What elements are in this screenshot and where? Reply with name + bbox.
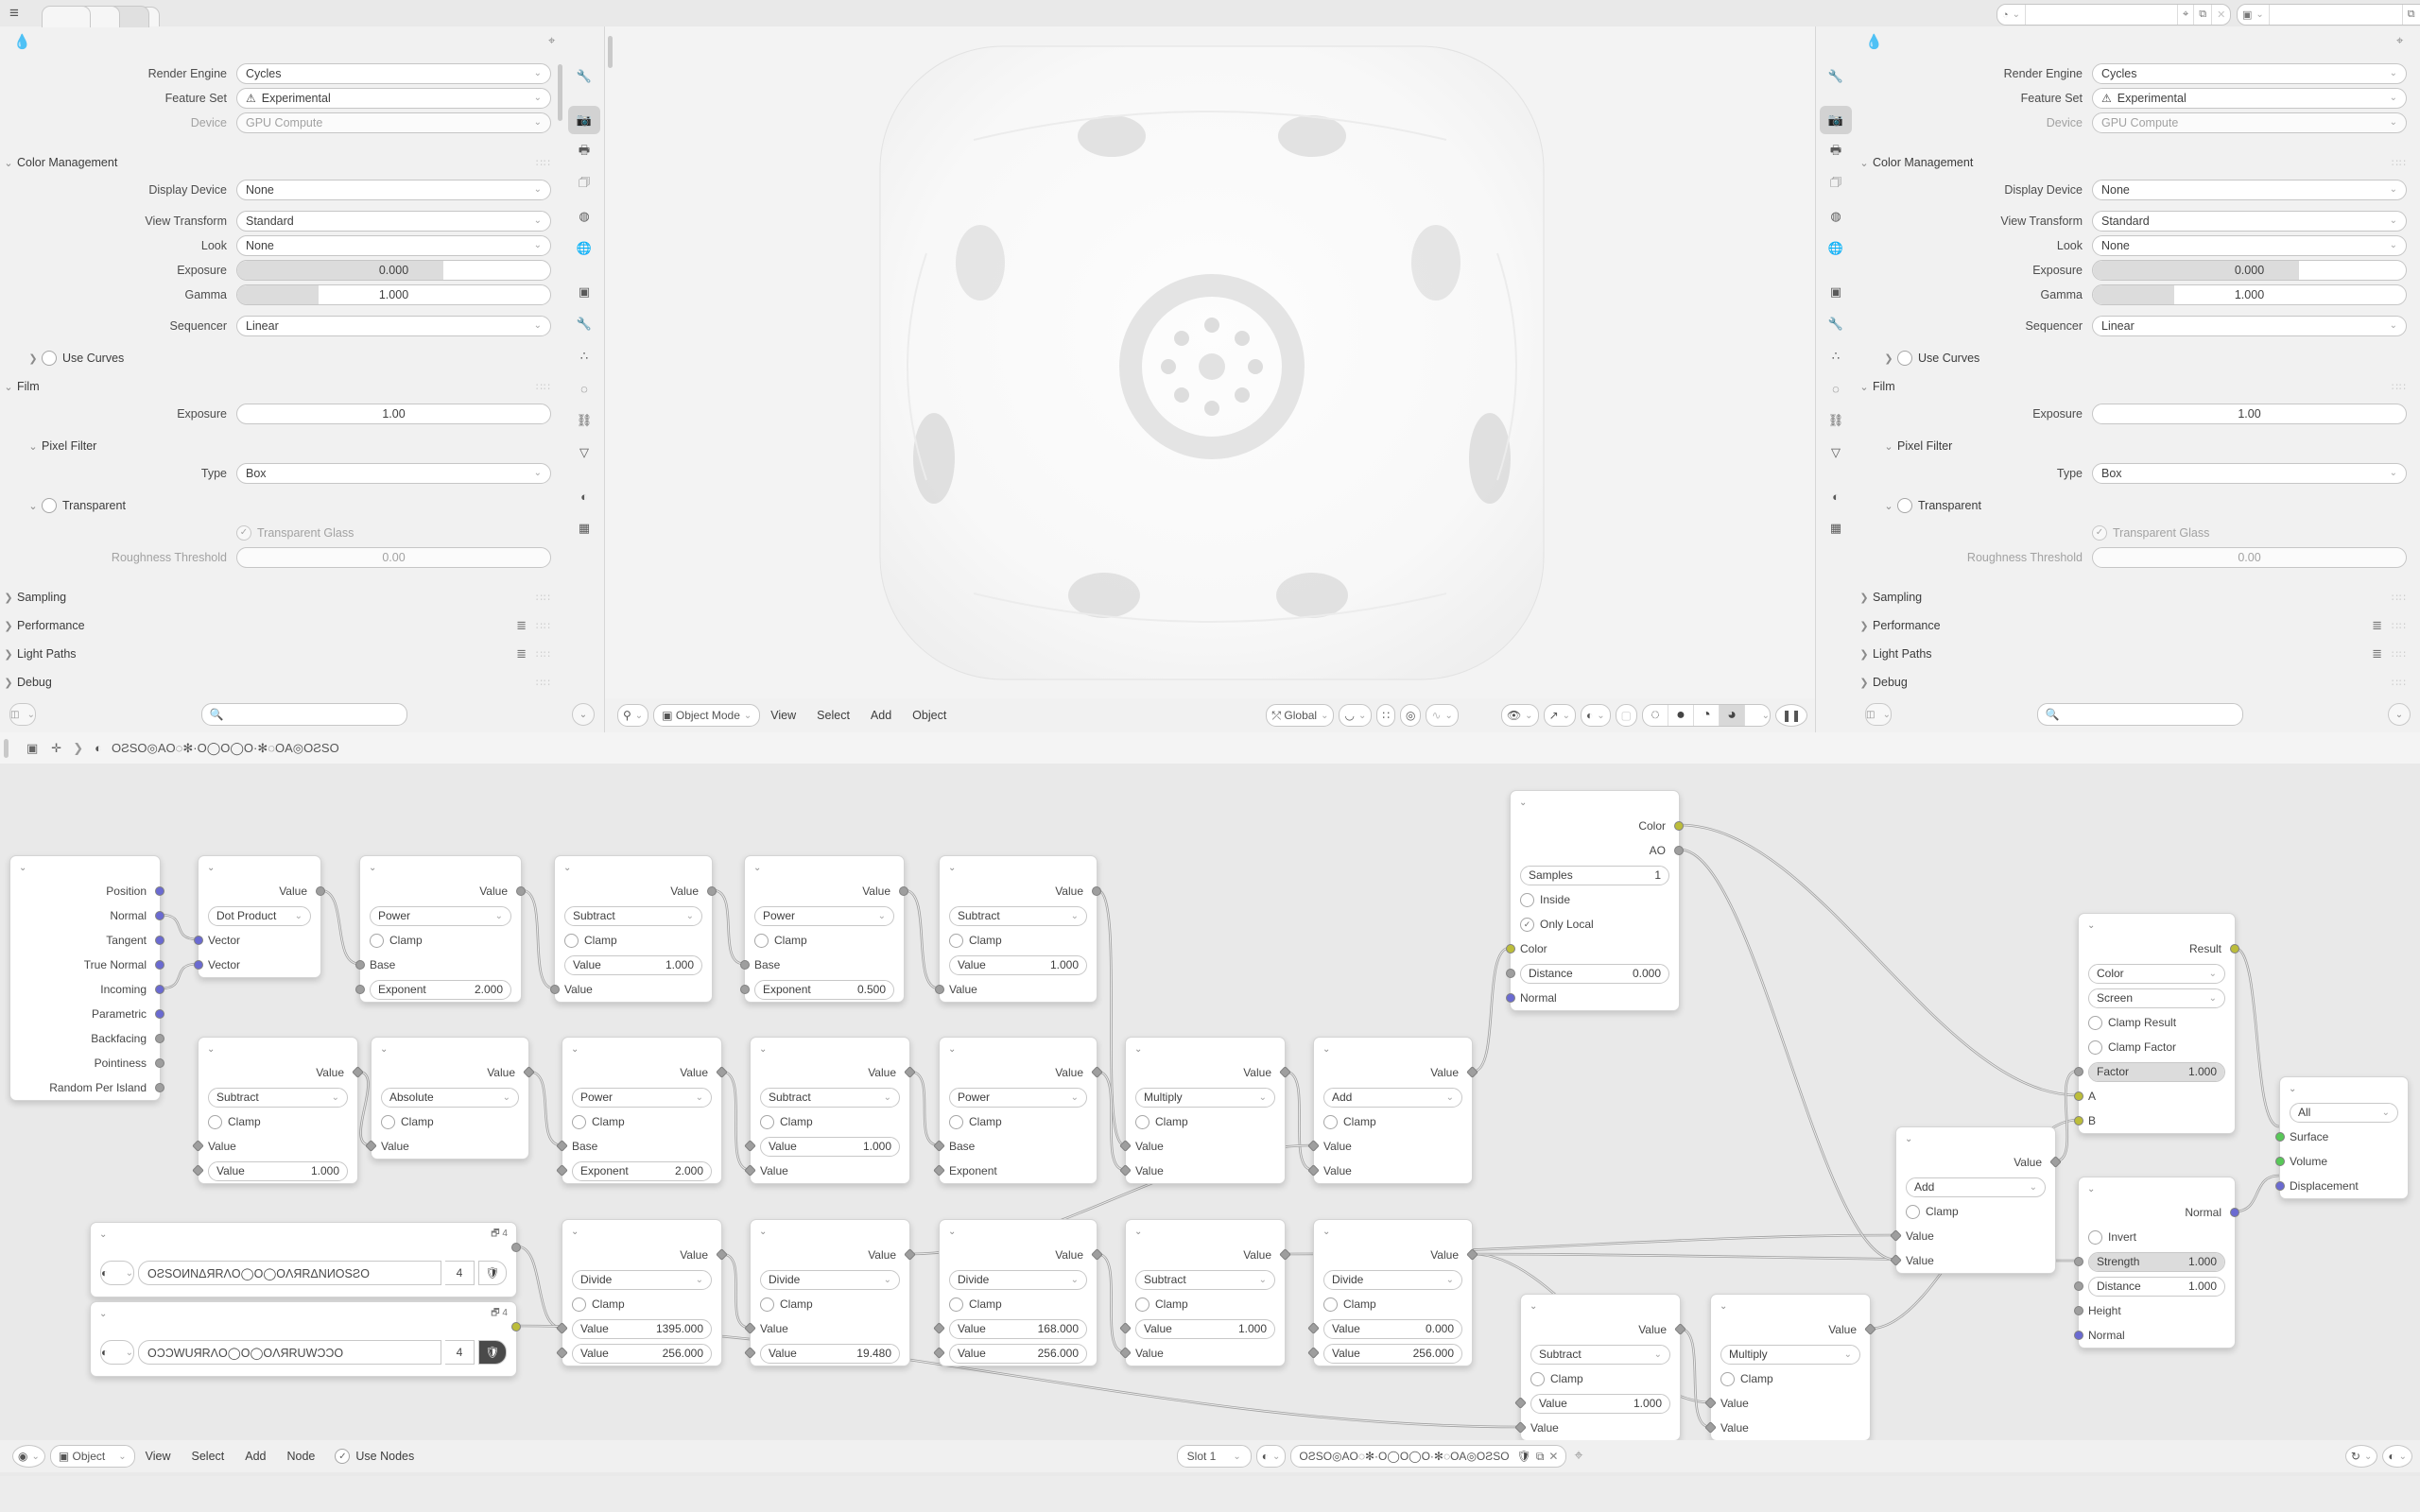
properties-tab-scene-icon[interactable]: ◍ xyxy=(1820,202,1852,231)
checkbox[interactable] xyxy=(1135,1115,1149,1129)
properties-tab-texture-icon[interactable]: ▦ xyxy=(1820,514,1852,542)
node-header[interactable]: ⌄ xyxy=(10,856,160,879)
snap-magnet-icon[interactable]: ◡⌄ xyxy=(1339,704,1372,727)
checkbox[interactable] xyxy=(760,1297,774,1312)
node-header[interactable]: ⌄ xyxy=(940,1038,1097,1060)
node-math-divide-r3a[interactable]: ⌄ValueDivide⌄ClampValue1395.000Value256.… xyxy=(562,1219,722,1366)
node-value-field[interactable]: Distance0.000 xyxy=(1520,964,1669,984)
collapse-chevron-icon[interactable]: ⌄ xyxy=(753,863,761,873)
collapse-chevron-icon[interactable]: ⌄ xyxy=(99,1309,107,1319)
checkbox[interactable] xyxy=(760,1115,774,1129)
node-header[interactable]: ⌄ xyxy=(2079,1177,2235,1200)
checkbox[interactable] xyxy=(208,1115,222,1129)
prop-field-display-device[interactable]: None⌄ xyxy=(236,180,551,200)
node-math-subtract-bottom[interactable]: ⌄ValueSubtract⌄ClampValue1.000Value xyxy=(1520,1294,1681,1441)
section-sampling[interactable]: ❯Sampling∷∷ xyxy=(1856,583,2420,611)
drag-handle-icon[interactable]: ∷∷ xyxy=(2392,620,2407,632)
node-select[interactable]: Subtract⌄ xyxy=(949,906,1087,926)
input-socket[interactable] xyxy=(2275,1132,2285,1142)
checkbox[interactable]: ✓ xyxy=(1520,918,1534,932)
section-sampling[interactable]: ❯Sampling∷∷ xyxy=(0,583,564,611)
node-value-field[interactable]: Value0.000 xyxy=(1323,1319,1462,1339)
snap-target-icon[interactable]: ∷ xyxy=(1376,704,1395,727)
material-id-name[interactable] xyxy=(2026,5,2178,25)
drag-handle-icon[interactable]: ∷∷ xyxy=(536,677,551,689)
node-header[interactable]: ⌄ xyxy=(2280,1077,2408,1100)
drag-handle-icon[interactable]: ∷∷ xyxy=(536,381,551,393)
node-value-field[interactable]: Value256.000 xyxy=(1323,1344,1462,1364)
node-math-divide-r3b[interactable]: ⌄ValueDivide⌄ClampValueValue19.480 xyxy=(750,1219,910,1366)
node-select[interactable]: Dot Product⌄ xyxy=(208,906,311,926)
prop-field-gamma[interactable]: 1.000 xyxy=(236,284,551,305)
collapse-chevron-icon[interactable]: ⌄ xyxy=(207,863,215,873)
close-icon[interactable]: ✕ xyxy=(2212,5,2230,25)
properties-tab-object-icon[interactable]: ▣ xyxy=(568,278,600,306)
input-socket[interactable] xyxy=(2074,1306,2083,1315)
node-math-absolute[interactable]: ⌄ValueAbsolute⌄ClampValue xyxy=(371,1037,529,1160)
transform-orientation-select[interactable]: ⤱ Global⌄ xyxy=(1266,704,1334,727)
input-socket[interactable] xyxy=(2074,1116,2083,1125)
node-select[interactable]: Subtract⌄ xyxy=(564,906,702,926)
properties-tab-object-data-icon[interactable]: ▽ xyxy=(1820,438,1852,467)
node-header[interactable]: ⌄ xyxy=(1126,1038,1285,1060)
section-debug[interactable]: ❯Debug∷∷ xyxy=(1856,668,2420,695)
input-socket[interactable] xyxy=(2074,1257,2083,1266)
output-socket[interactable] xyxy=(1674,846,1684,855)
node-header[interactable]: ⌄ xyxy=(940,1220,1097,1243)
collapse-chevron-icon[interactable]: ⌄ xyxy=(380,1044,388,1055)
node-ambient-occlusion[interactable]: ⌄ColorAOSamples1Inside✓Only LocalColorDi… xyxy=(1510,790,1680,1011)
collapse-chevron-icon[interactable]: ⌄ xyxy=(759,1044,767,1055)
checkbox[interactable] xyxy=(1906,1205,1920,1219)
collapse-chevron-icon[interactable]: ⌄ xyxy=(948,1044,956,1055)
properties-tab-constraints-icon[interactable]: ⛓ xyxy=(568,406,600,435)
drag-handle-icon[interactable]: ∷∷ xyxy=(536,157,551,169)
output-socket[interactable] xyxy=(155,1034,164,1043)
checkbox[interactable] xyxy=(370,934,384,948)
drag-handle-icon[interactable]: ∷∷ xyxy=(536,648,551,661)
node-math-power-1[interactable]: ⌄ValuePower⌄ClampBaseExponent2.000 xyxy=(359,855,522,1003)
node-math-power-r2[interactable]: ⌄ValuePower⌄ClampBaseExponent2.000 xyxy=(562,1037,722,1184)
falloff-curve-icon[interactable]: ∿⌄ xyxy=(1426,704,1458,727)
input-socket[interactable] xyxy=(740,960,750,970)
slot-select[interactable]: Slot 1⌄ xyxy=(1177,1445,1252,1468)
collapse-chevron-icon[interactable]: ⌄ xyxy=(1720,1301,1727,1312)
output-socket[interactable] xyxy=(511,1322,521,1332)
section-transparent[interactable]: ⌄Transparent xyxy=(1856,491,2420,520)
node-value-field[interactable]: Factor1.000 xyxy=(2088,1062,2225,1082)
node-header[interactable]: ⌄ xyxy=(1511,791,1679,814)
node-value-field[interactable]: Value256.000 xyxy=(572,1344,712,1364)
viewport-menu-object[interactable]: Object xyxy=(912,709,946,722)
output-socket[interactable] xyxy=(155,1083,164,1092)
prop-field-device[interactable]: GPU Compute⌄ xyxy=(2092,112,2407,133)
shading-solid-icon[interactable]: ● xyxy=(1668,705,1694,726)
checkbox[interactable] xyxy=(1897,351,1912,366)
node-select[interactable]: Subtract⌄ xyxy=(1530,1345,1670,1365)
prop-field-roughness-threshold[interactable]: 0.00 xyxy=(2092,547,2407,568)
node-value-field[interactable]: Value1.000 xyxy=(760,1137,900,1157)
node-math-multiply-r2[interactable]: ⌄ValueMultiply⌄ClampValueValue xyxy=(1125,1037,1286,1184)
collapse-chevron-icon[interactable]: ⌄ xyxy=(2087,920,2095,931)
shading-wireframe-icon[interactable]: ◌ xyxy=(1643,705,1668,726)
node-math-subtract-r2a[interactable]: ⌄ValueSubtract⌄ClampValueValue1.000 xyxy=(198,1037,358,1184)
node-header[interactable]: ⌄ xyxy=(1711,1295,1870,1317)
image-user-count[interactable]: 4 xyxy=(445,1261,475,1285)
checkbox[interactable] xyxy=(1520,893,1534,907)
checkbox[interactable] xyxy=(42,498,57,513)
node-header[interactable]: ⌄ xyxy=(199,856,320,879)
editor-type-button[interactable]: ◉⌄ xyxy=(12,1445,45,1468)
node-select[interactable]: Multiply⌄ xyxy=(1135,1088,1275,1108)
properties-tab-modifiers-icon[interactable]: 🔧 xyxy=(1820,310,1852,338)
section-performance[interactable]: ❯Performance≣∷∷ xyxy=(0,611,564,640)
output-socket[interactable] xyxy=(707,886,717,896)
checkbox[interactable] xyxy=(2088,1040,2102,1055)
viewport-menu-select[interactable]: Select xyxy=(817,709,850,722)
output-socket[interactable] xyxy=(155,1009,164,1019)
prop-field-exposure[interactable]: 1.00 xyxy=(236,404,551,424)
filter-toggle-button[interactable]: ◫⌄ xyxy=(1865,703,1892,726)
input-socket[interactable] xyxy=(2074,1067,2083,1076)
checkbox[interactable]: ✓ xyxy=(236,525,251,541)
material-name-field[interactable]: OƧSO◎AO◌✻·O◯O◯O·✻◌OA◎OƧSO 🛡 ⧉ ✕ xyxy=(1290,1445,1566,1468)
drag-handle-icon[interactable]: ∷∷ xyxy=(2392,381,2407,393)
prop-field-exposure[interactable]: 0.000 xyxy=(2092,260,2407,281)
proportional-edit-icon[interactable]: ◎ xyxy=(1400,704,1421,727)
drag-handle-icon[interactable]: ∷∷ xyxy=(536,620,551,632)
collapse-chevron-icon[interactable]: ⌄ xyxy=(1530,1301,1537,1312)
collapse-chevron-icon[interactable]: ⌄ xyxy=(759,1227,767,1237)
properties-tab-constraints-icon[interactable]: ⛓ xyxy=(1820,406,1852,435)
checkbox[interactable] xyxy=(564,934,579,948)
visibility-eye-icon[interactable]: 👁⌄ xyxy=(1501,704,1539,727)
output-socket[interactable] xyxy=(1674,821,1684,831)
pin-icon[interactable]: ⌖ xyxy=(2396,33,2403,48)
node-select[interactable]: Add⌄ xyxy=(1906,1177,2046,1197)
prop-field-feature-set[interactable]: ⚠Experimental⌄ xyxy=(2092,88,2407,109)
checkbox[interactable] xyxy=(949,934,963,948)
properties-tab-render-icon[interactable]: 📷 xyxy=(568,106,600,134)
collapse-chevron-icon[interactable]: ⌄ xyxy=(1905,1134,1912,1144)
checkbox[interactable]: ✓ xyxy=(2092,525,2107,541)
checkbox[interactable] xyxy=(1897,498,1912,513)
collapse-chevron-icon[interactable]: ⌄ xyxy=(19,863,26,873)
node-header[interactable]: ⌄ xyxy=(745,856,904,879)
shading-material-icon[interactable]: ◔ xyxy=(1694,705,1720,726)
copy-icon[interactable]: ⧉ xyxy=(2403,5,2420,25)
use-nodes-checkbox[interactable]: ✓Use Nodes xyxy=(335,1449,414,1464)
prop-field-roughness-threshold[interactable]: 0.00 xyxy=(236,547,551,568)
viewport-3d[interactable]: ⚲⌄ ▣ Object Mode⌄ ViewSelectAddObject ⤱ … xyxy=(605,26,1815,732)
node-header[interactable]: ⌄ xyxy=(1314,1038,1472,1060)
preset-list-icon[interactable]: ≣ xyxy=(2372,618,2382,633)
section-pixel-filter[interactable]: ⌄Pixel Filter xyxy=(1856,432,2420,460)
scrollbar[interactable] xyxy=(608,36,613,68)
node-header[interactable]: ⌄ xyxy=(1521,1295,1680,1317)
node-value-field[interactable]: Value168.000 xyxy=(949,1319,1087,1339)
section-performance[interactable]: ❯Performance≣∷∷ xyxy=(1856,611,2420,640)
collapse-chevron-icon[interactable]: ⌄ xyxy=(1134,1044,1142,1055)
node-value-field[interactable]: Exponent0.500 xyxy=(754,980,894,1000)
drag-handle-icon[interactable]: ∷∷ xyxy=(2392,648,2407,661)
node-value-field[interactable]: Value1.000 xyxy=(564,955,702,975)
prop-field-sequencer[interactable]: Linear⌄ xyxy=(236,316,551,336)
collapse-chevron-icon[interactable]: ⌄ xyxy=(1322,1227,1330,1237)
properties-tab-scene-icon[interactable]: ◍ xyxy=(568,202,600,231)
mode-select[interactable]: ▣ Object Mode⌄ xyxy=(653,704,760,727)
node-header[interactable]: ⌄ xyxy=(555,856,712,879)
gizmo-arrow-icon[interactable]: ↗⌄ xyxy=(1544,704,1576,727)
node-select[interactable]: Absolute⌄ xyxy=(381,1088,519,1108)
collapse-chevron-icon[interactable]: ⌄ xyxy=(571,1227,579,1237)
image-datablock-icon[interactable]: ◐⌄ xyxy=(100,1340,134,1365)
properties-tab-view-layer-icon[interactable]: 🗇 xyxy=(568,170,600,198)
collapse-chevron-icon[interactable]: ⌄ xyxy=(563,863,571,873)
node-image-texture-a[interactable]: ⌄🗗 4◐⌄OƧSOИNΔЯRΛO◯O◯OΛЯRΔNИOSƧO4🛡 xyxy=(90,1222,517,1297)
checkbox[interactable] xyxy=(1720,1372,1735,1386)
properties-tab-view-layer-icon[interactable]: 🗇 xyxy=(1820,170,1852,198)
checkbox[interactable] xyxy=(949,1297,963,1312)
output-socket[interactable] xyxy=(316,886,325,896)
input-socket[interactable] xyxy=(2074,1281,2083,1291)
section-debug[interactable]: ❯Debug∷∷ xyxy=(0,668,564,695)
properties-tab-output-icon[interactable]: 🖶 xyxy=(1820,138,1852,166)
copy-icon[interactable]: ⧉ xyxy=(1536,1450,1545,1464)
output-socket[interactable] xyxy=(155,911,164,920)
node-select[interactable]: Multiply⌄ xyxy=(1720,1345,1860,1365)
input-socket[interactable] xyxy=(740,985,750,994)
input-socket[interactable] xyxy=(2275,1181,2285,1191)
prop-field-sequencer[interactable]: Linear⌄ xyxy=(2092,316,2407,336)
input-socket[interactable] xyxy=(550,985,560,994)
checkbox[interactable] xyxy=(2088,1230,2102,1245)
collapse-button[interactable]: ⌄ xyxy=(572,703,595,726)
node-value-field[interactable]: Samples1 xyxy=(1520,866,1669,885)
section-color-management[interactable]: ⌄Color Management∷∷ xyxy=(0,148,564,177)
prop-field-type[interactable]: Box⌄ xyxy=(2092,463,2407,484)
prop-field-exposure[interactable]: 0.000 xyxy=(236,260,551,281)
prop-field-view-transform[interactable]: Standard⌄ xyxy=(236,211,551,232)
node-select[interactable]: Divide⌄ xyxy=(572,1270,712,1290)
node-select[interactable]: Subtract⌄ xyxy=(208,1088,348,1108)
section-use-curves[interactable]: ❯Use Curves xyxy=(0,344,564,372)
node-header[interactable]: ⌄ xyxy=(1126,1220,1285,1243)
shader-editor[interactable]: ▣ ✛ ❯ ◐ OƧSO◎AO◌✻·O◯O◯O·✻◌OA◎OƧSO ⌄Posit… xyxy=(0,732,2420,1476)
collapse-chevron-icon[interactable]: ⌄ xyxy=(1134,1227,1142,1237)
section-light-paths[interactable]: ❯Light Paths≣∷∷ xyxy=(0,640,564,668)
node-header[interactable]: ⌄ xyxy=(199,1038,357,1060)
properties-tab-tool-icon[interactable]: 🔧 xyxy=(568,62,600,91)
overlays-icon[interactable]: ◐⌄ xyxy=(1581,704,1611,727)
prop-field-device[interactable]: GPU Compute⌄ xyxy=(236,112,551,133)
node-select[interactable]: Subtract⌄ xyxy=(760,1088,900,1108)
section-film[interactable]: ⌄Film∷∷ xyxy=(1856,372,2420,401)
node-math-add-r2[interactable]: ⌄ValueAdd⌄ClampValueValue xyxy=(1313,1037,1473,1184)
output-socket[interactable] xyxy=(155,886,164,896)
node-value-field[interactable]: Value19.480 xyxy=(760,1344,900,1364)
properties-tab-texture-icon[interactable]: ▦ xyxy=(568,514,600,542)
shader-menu-add[interactable]: Add xyxy=(245,1450,266,1463)
collapse-chevron-icon[interactable]: ⌄ xyxy=(99,1229,107,1240)
properties-tab-material-icon[interactable]: ◐ xyxy=(568,482,600,510)
properties-tab-tool-icon[interactable]: 🔧 xyxy=(1820,62,1852,91)
properties-tab-world-icon[interactable]: 🌐 xyxy=(568,234,600,263)
output-socket[interactable] xyxy=(155,936,164,945)
output-socket[interactable] xyxy=(516,886,526,896)
input-socket[interactable] xyxy=(2074,1331,2083,1340)
node-math-subtract-r3[interactable]: ⌄ValueSubtract⌄ClampValue1.000Value xyxy=(1125,1219,1286,1366)
node-image-texture-b[interactable]: ⌄🗗 4◐⌄OƆƆWUЯRΛO◯O◯OΛЯRUWƆƆO4🛡 xyxy=(90,1301,517,1377)
checkbox[interactable] xyxy=(572,1297,586,1312)
node-select[interactable]: Divide⌄ xyxy=(1323,1270,1462,1290)
node-header[interactable]: ⌄ xyxy=(1314,1220,1472,1243)
checkbox[interactable] xyxy=(1530,1372,1545,1386)
viewport-menu-view[interactable]: View xyxy=(770,709,796,722)
shader-menu-view[interactable]: View xyxy=(146,1450,171,1463)
node-bump[interactable]: ⌄NormalInvertStrength1.000Distance1.000H… xyxy=(2078,1177,2236,1349)
properties-tab-render-icon[interactable]: 📷 xyxy=(1820,106,1852,134)
section-color-management[interactable]: ⌄Color Management∷∷ xyxy=(1856,148,2420,177)
collapse-chevron-icon[interactable]: ⌄ xyxy=(369,863,376,873)
fake-user-shield-icon[interactable]: 🛡 xyxy=(478,1340,507,1365)
node-select[interactable]: Divide⌄ xyxy=(760,1270,900,1290)
scrollbar[interactable] xyxy=(558,64,562,121)
node-value-field[interactable]: Value1395.000 xyxy=(572,1319,712,1339)
copy-icon[interactable]: ⧉ xyxy=(2194,5,2212,25)
properties-tab-world-icon[interactable]: 🌐 xyxy=(1820,234,1852,263)
node-header[interactable]: ⌄ xyxy=(360,856,521,879)
checkbox[interactable] xyxy=(2088,1016,2102,1030)
node-select[interactable]: Power⌄ xyxy=(370,906,511,926)
checkbox[interactable] xyxy=(1135,1297,1149,1312)
shading-rendered-icon[interactable]: ◕ xyxy=(1720,705,1745,726)
image-id-selector[interactable]: ▣⌄ ⧉ ✕ xyxy=(2237,4,2420,26)
overlay-icon[interactable]: ◐⌄ xyxy=(2382,1445,2412,1468)
collapse-chevron-icon[interactable]: ⌄ xyxy=(1322,1044,1330,1055)
collapse-chevron-icon[interactable]: ⌄ xyxy=(948,863,956,873)
image-name-field[interactable]: OƆƆWUЯRΛO◯O◯OΛЯRUWƆƆO xyxy=(138,1340,441,1365)
collapse-chevron-icon[interactable]: ⌄ xyxy=(948,1227,956,1237)
prop-field-feature-set[interactable]: ⚠Experimental⌄ xyxy=(236,88,551,109)
input-socket[interactable] xyxy=(935,985,944,994)
node-mix-color[interactable]: ⌄ResultColor⌄Screen⌄Clamp ResultClamp Fa… xyxy=(2078,913,2236,1134)
pin-icon[interactable]: ⌖ xyxy=(1574,1448,1582,1465)
input-socket[interactable] xyxy=(2074,1091,2083,1101)
node-value-field[interactable]: Distance1.000 xyxy=(2088,1277,2225,1297)
node-value-field[interactable]: Strength1.000 xyxy=(2088,1252,2225,1272)
node-select[interactable]: Color⌄ xyxy=(2088,964,2225,984)
image-icon[interactable]: ▣⌄ xyxy=(2238,5,2270,25)
node-math-subtract-2[interactable]: ⌄ValueSubtract⌄ClampValue1.000Value xyxy=(939,855,1098,1003)
input-socket[interactable] xyxy=(355,985,365,994)
node-value-field[interactable]: Value1.000 xyxy=(208,1161,348,1181)
collapse-chevron-icon[interactable]: ⌄ xyxy=(2289,1084,2296,1094)
node-header[interactable]: ⌄🗗 4 xyxy=(91,1302,516,1325)
shader-mode-select[interactable]: ▣ Object⌄ xyxy=(50,1445,135,1468)
checkbox[interactable] xyxy=(754,934,769,948)
image-name-field[interactable]: OƧSOИNΔЯRΛO◯O◯OΛЯRΔNИOSƧO xyxy=(138,1261,441,1285)
collapse-chevron-icon[interactable]: ⌄ xyxy=(207,1044,215,1055)
output-socket[interactable] xyxy=(2230,944,2239,954)
output-socket[interactable] xyxy=(155,985,164,994)
node-value-field[interactable]: Value256.000 xyxy=(949,1344,1087,1364)
drag-handle-icon[interactable]: ∷∷ xyxy=(536,592,551,604)
section-use-curves[interactable]: ❯Use Curves xyxy=(1856,344,2420,372)
image-datablock-icon[interactable]: ◐⌄ xyxy=(100,1261,134,1285)
prop-field-display-device[interactable]: None⌄ xyxy=(2092,180,2407,200)
properties-search-input[interactable]: 🔍 xyxy=(201,703,407,726)
node-header[interactable]: ⌄ xyxy=(1896,1127,2055,1150)
output-socket[interactable] xyxy=(155,960,164,970)
pin-icon[interactable]: ⌖ xyxy=(2178,5,2194,25)
prop-field-exposure[interactable]: 1.00 xyxy=(2092,404,2407,424)
shading-dropdown-icon[interactable]: ⌄ xyxy=(1745,705,1770,726)
section-light-paths[interactable]: ❯Light Paths≣∷∷ xyxy=(1856,640,2420,668)
checkbox[interactable] xyxy=(1323,1297,1338,1312)
image-id-name[interactable] xyxy=(2270,5,2403,25)
prop-field-render-engine[interactable]: Cycles⌄ xyxy=(2092,63,2407,84)
properties-tab-material-icon[interactable]: ◐ xyxy=(1820,482,1852,510)
collapse-chevron-icon[interactable]: ⌄ xyxy=(2087,1184,2095,1194)
input-socket[interactable] xyxy=(1506,993,1515,1003)
node-select[interactable]: All⌄ xyxy=(2290,1103,2398,1123)
node-select[interactable]: Divide⌄ xyxy=(949,1270,1087,1290)
node-value-field[interactable]: Value1.000 xyxy=(949,955,1087,975)
output-socket[interactable] xyxy=(899,886,908,896)
checkbox[interactable] xyxy=(572,1115,586,1129)
viewport-menu-add[interactable]: Add xyxy=(871,709,891,722)
node-material-output[interactable]: ⌄All⌄SurfaceVolumeDisplacement xyxy=(2279,1076,2409,1199)
preset-list-icon[interactable]: ≣ xyxy=(2372,646,2382,661)
properties-tab-particles-icon[interactable]: ∴ xyxy=(1820,342,1852,370)
node-math-power-2[interactable]: ⌄ValuePower⌄ClampBaseExponent0.500 xyxy=(744,855,905,1003)
collapse-chevron-icon[interactable]: ⌄ xyxy=(1519,798,1527,808)
node-header[interactable]: ⌄ xyxy=(372,1038,528,1060)
output-socket[interactable] xyxy=(1092,886,1101,896)
material-drop-icon[interactable]: ◔⌄ xyxy=(1997,5,2026,25)
node-math-subtract-1[interactable]: ⌄ValueSubtract⌄ClampValue1.000Value xyxy=(554,855,713,1003)
node-select[interactable]: Power⌄ xyxy=(572,1088,712,1108)
checkbox[interactable] xyxy=(1323,1115,1338,1129)
prop-field-render-engine[interactable]: Cycles⌄ xyxy=(236,63,551,84)
image-user-count[interactable]: 4 xyxy=(445,1340,475,1365)
output-socket[interactable] xyxy=(155,1058,164,1068)
drag-handle-icon[interactable]: ∷∷ xyxy=(2392,592,2407,604)
node-select[interactable]: Subtract⌄ xyxy=(1135,1270,1275,1290)
node-header[interactable]: ⌄ xyxy=(562,1038,721,1060)
node-value-field[interactable]: Exponent2.000 xyxy=(370,980,511,1000)
node-select[interactable]: Power⌄ xyxy=(949,1088,1087,1108)
snap-icon[interactable]: ↻⌄ xyxy=(2345,1445,2377,1468)
material-id-selector[interactable]: ◔⌄ ⌖ ⧉ ✕ xyxy=(1996,4,2231,26)
properties-tab-physics-icon[interactable]: ◌ xyxy=(1820,374,1852,403)
node-header[interactable]: ⌄ xyxy=(562,1220,721,1243)
node-value-field[interactable]: Exponent2.000 xyxy=(572,1161,712,1181)
prop-field-view-transform[interactable]: Standard⌄ xyxy=(2092,211,2407,232)
drag-handle-icon[interactable]: ∷∷ xyxy=(2392,677,2407,689)
input-socket[interactable] xyxy=(2275,1157,2285,1166)
properties-tab-physics-icon[interactable]: ◌ xyxy=(568,374,600,403)
section-transparent[interactable]: ⌄Transparent xyxy=(0,491,564,520)
input-socket[interactable] xyxy=(194,936,203,945)
node-math-power-r2c[interactable]: ⌄ValuePower⌄ClampBaseExponent xyxy=(939,1037,1098,1184)
filter-toggle-button[interactable]: ◫⌄ xyxy=(9,703,36,726)
app-menu-icon[interactable]: ≡ xyxy=(9,5,30,22)
node-value-field[interactable]: Value1.000 xyxy=(1135,1319,1275,1339)
properties-search-input[interactable]: 🔍 xyxy=(2037,703,2243,726)
input-socket[interactable] xyxy=(1506,969,1515,978)
